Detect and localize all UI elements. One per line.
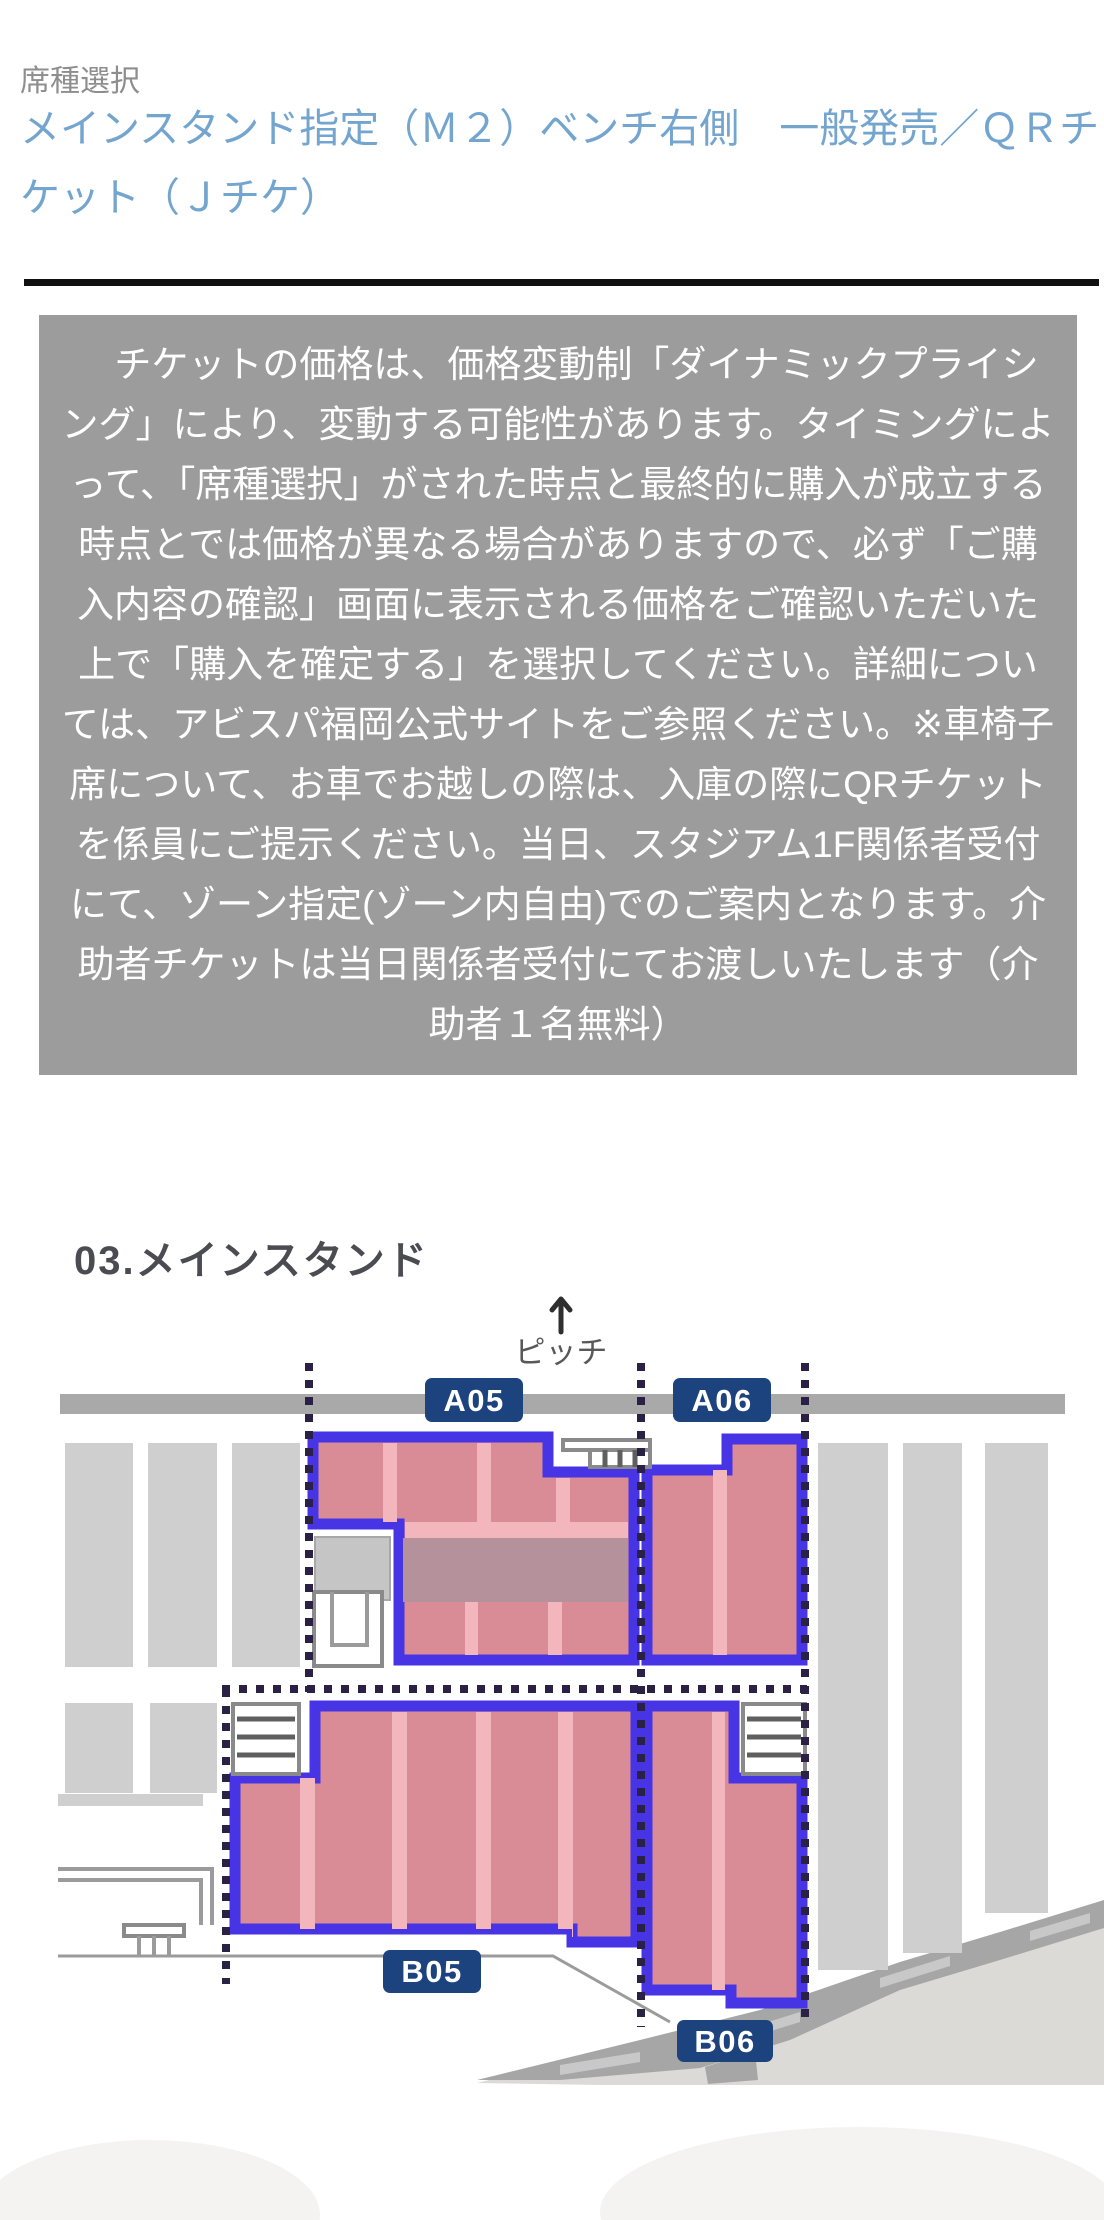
svg-text:A06: A06 — [691, 1383, 752, 1418]
corridor-structure — [314, 1592, 382, 1666]
wall-structure — [58, 1869, 212, 1925]
divider-rule — [24, 279, 1099, 286]
pitch-label: ピッチ — [515, 1335, 608, 1370]
svg-text:A05: A05 — [443, 1383, 504, 1418]
area-label-b06: B06 — [677, 2020, 773, 2062]
concourse-walkway — [60, 1394, 1065, 1414]
svg-text:B05: B05 — [401, 1954, 462, 1989]
stairs-icon-b06 — [743, 1704, 805, 1774]
area-label-b05: B05 — [383, 1950, 481, 1993]
area-label-a05: A05 — [425, 1378, 523, 1422]
svg-text:B06: B06 — [694, 2024, 755, 2059]
dynamic-pricing-notice: チケットの価格は、価格変動制「ダイナミックプライシング」により、変動する可能性が… — [39, 315, 1077, 1075]
pitch-arrow-icon — [552, 1299, 570, 1332]
ground-shading — [0, 2127, 1104, 2220]
page-title: メインスタンド指定（Ｍ２）ベンチ右側 一般発売／ＱＲチケット（Ｊチケ） — [20, 95, 1102, 233]
path-line — [58, 1956, 670, 2022]
stairs-icon-b05 — [233, 1704, 299, 1774]
map-title: 03.メインスタンド — [74, 1228, 429, 1286]
stairs-icon-bottom-left — [124, 1925, 184, 1957]
area-label-a06: A06 — [673, 1378, 771, 1422]
stairs-icon-top — [563, 1440, 650, 1467]
seat-block-a06 — [647, 1439, 802, 1660]
stadium-map: A05 A06 B05 B06 ピッチ — [0, 1280, 1104, 2220]
